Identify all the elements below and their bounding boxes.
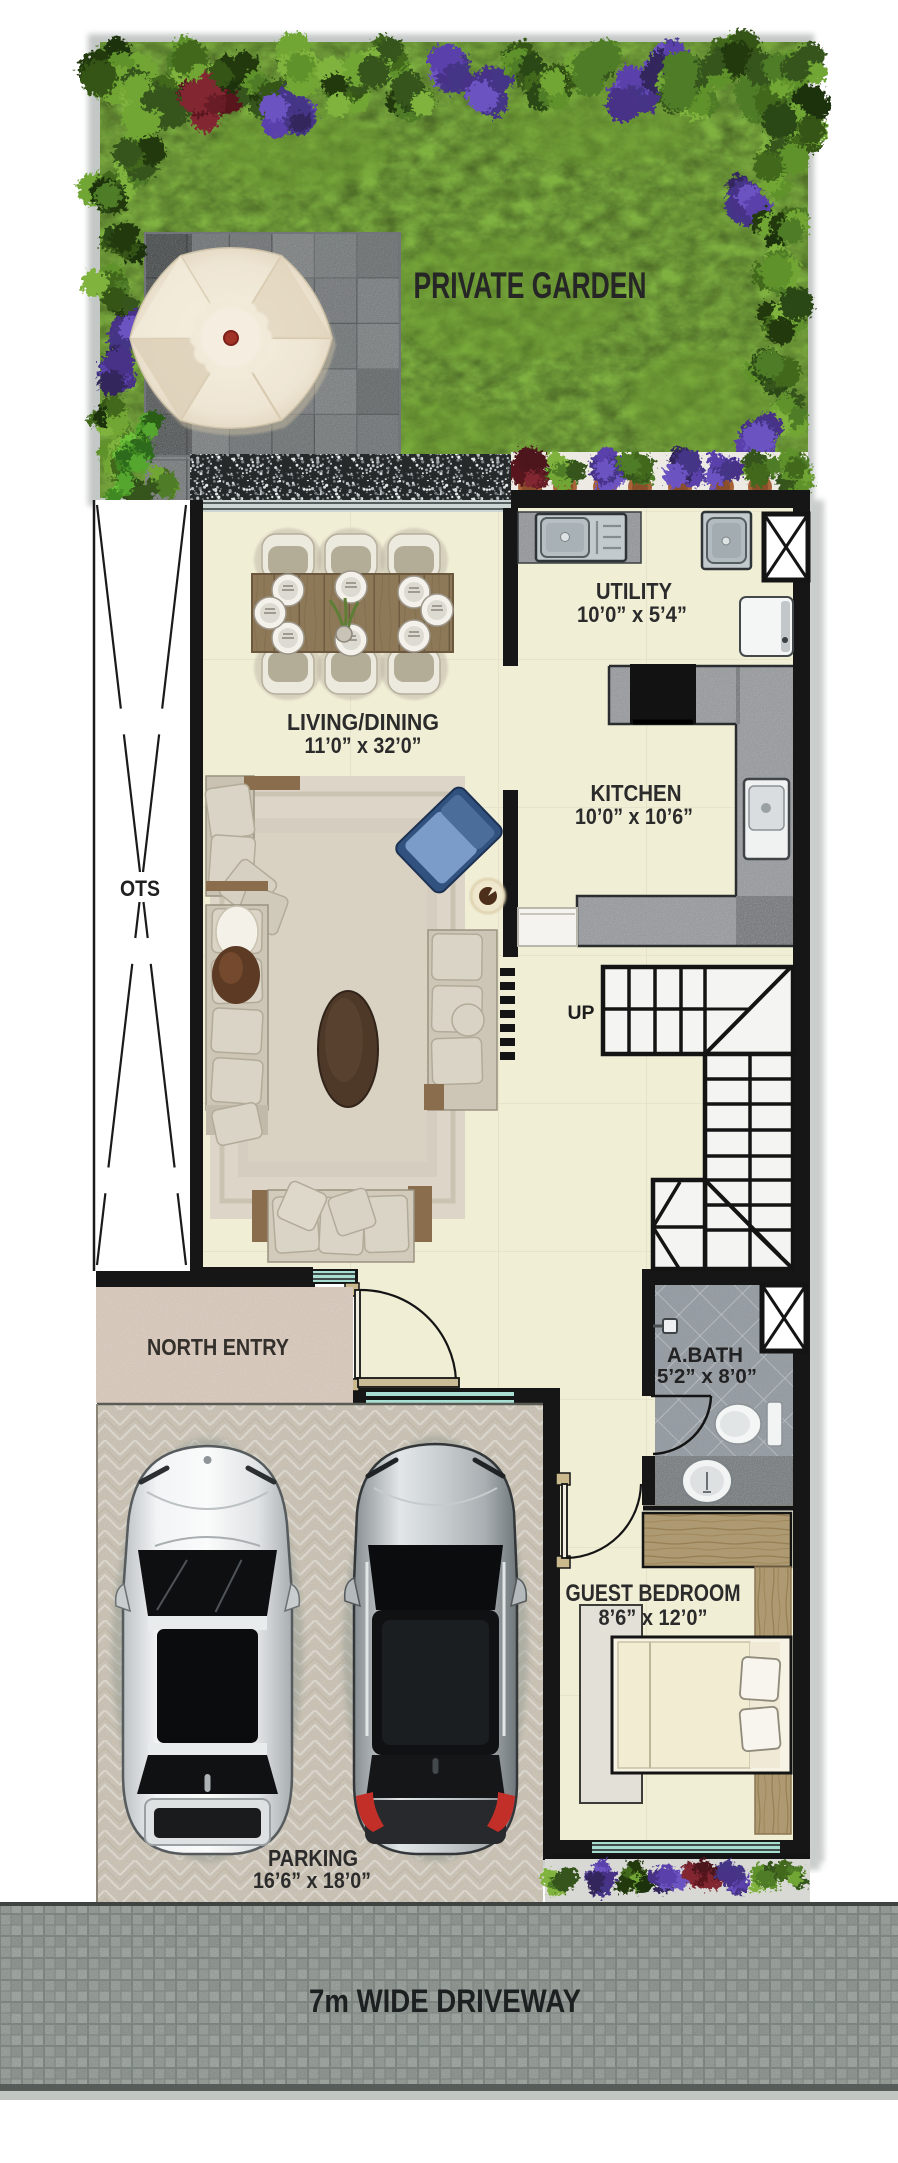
- svg-text:A.BATH: A.BATH: [667, 1344, 743, 1367]
- svg-text:UP: UP: [568, 1003, 595, 1024]
- svg-text:7m WIDE DRIVEWAY: 7m WIDE DRIVEWAY: [309, 1983, 581, 2019]
- svg-text:10’0” x 5’4”: 10’0” x 5’4”: [577, 602, 687, 627]
- svg-text:5’2” x 8’0”: 5’2” x 8’0”: [657, 1366, 757, 1388]
- svg-text:GUEST BEDROOM: GUEST BEDROOM: [566, 1580, 741, 1607]
- svg-text:KITCHEN: KITCHEN: [591, 780, 682, 806]
- svg-text:11’0” x 32’0”: 11’0” x 32’0”: [305, 733, 422, 758]
- svg-text:8’6” x 12’0”: 8’6” x 12’0”: [599, 1605, 708, 1630]
- svg-text:OTS: OTS: [120, 876, 160, 901]
- svg-text:UTILITY: UTILITY: [596, 578, 672, 604]
- svg-text:NORTH ENTRY: NORTH ENTRY: [147, 1334, 289, 1360]
- svg-text:PRIVATE GARDEN: PRIVATE GARDEN: [414, 265, 647, 306]
- svg-text:LIVING/DINING: LIVING/DINING: [287, 709, 439, 735]
- svg-text:16’6” x 18’0”: 16’6” x 18’0”: [253, 1868, 371, 1893]
- svg-text:10’0” x 10’6”: 10’0” x 10’6”: [575, 804, 693, 829]
